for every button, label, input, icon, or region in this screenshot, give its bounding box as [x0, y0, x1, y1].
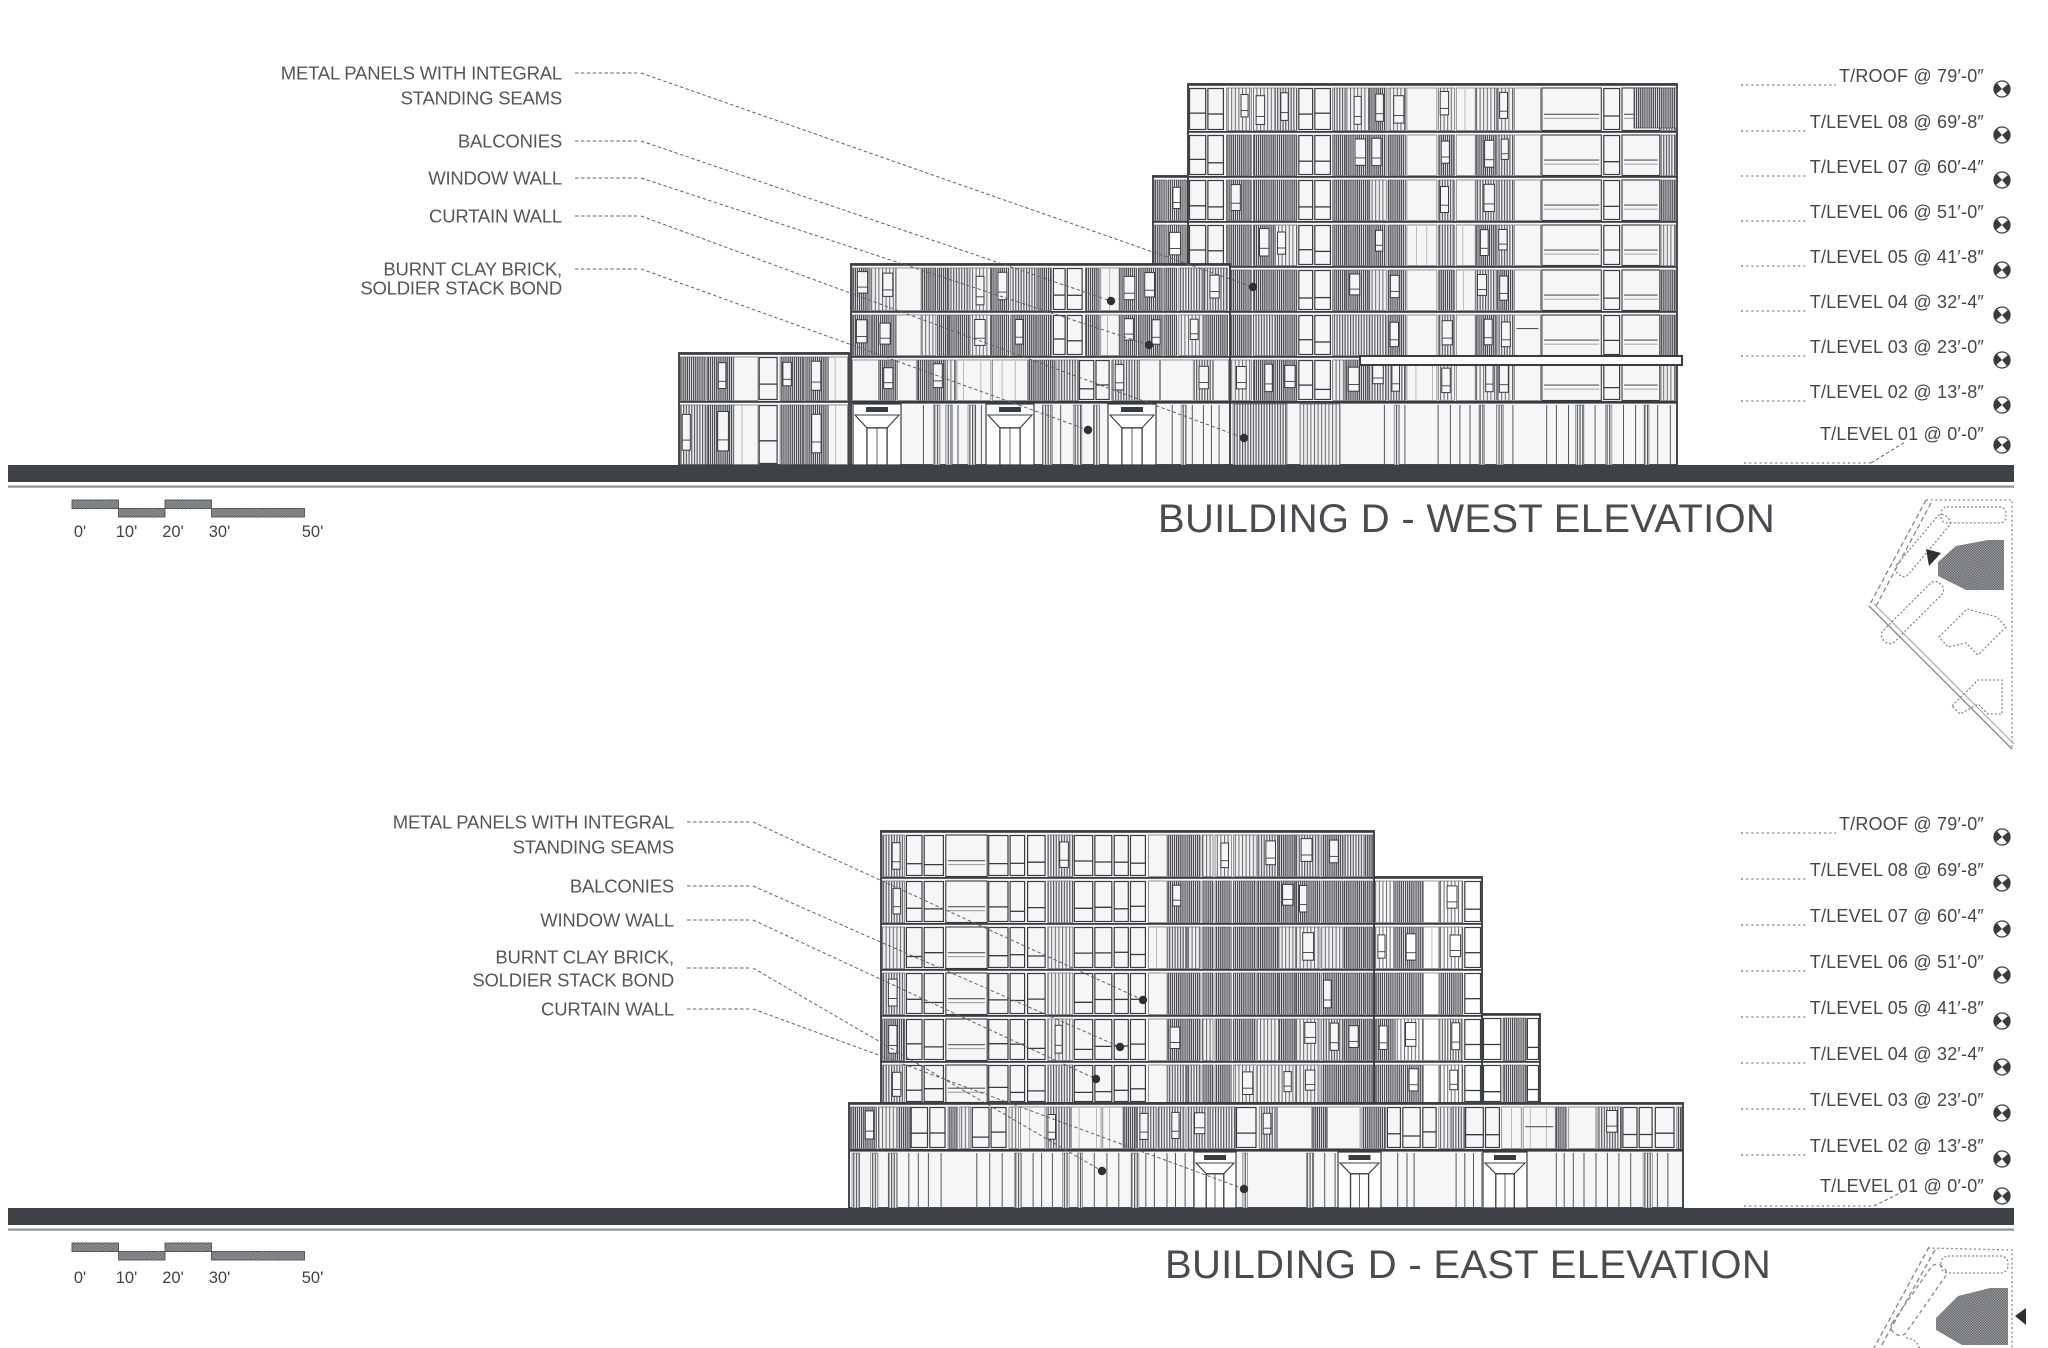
svg-text:WINDOW WALL: WINDOW WALL [540, 910, 674, 931]
svg-text:T/LEVEL 05 @ 41′-8″: T/LEVEL 05 @ 41′-8″ [1810, 998, 1985, 1018]
svg-text:20': 20' [162, 523, 184, 541]
svg-text:T/LEVEL 02 @ 13′-8″: T/LEVEL 02 @ 13′-8″ [1810, 382, 1985, 402]
svg-text:T/LEVEL 04 @ 32′-4″: T/LEVEL 04 @ 32′-4″ [1810, 292, 1985, 312]
svg-text:T/LEVEL 08 @ 69′-8″: T/LEVEL 08 @ 69′-8″ [1810, 112, 1985, 132]
svg-text:BURNT CLAY BRICK,: BURNT CLAY BRICK, [495, 947, 674, 968]
svg-text:T/LEVEL 04 @ 32′-4″: T/LEVEL 04 @ 32′-4″ [1810, 1044, 1985, 1064]
svg-text:BUILDING D - WEST ELEVATION: BUILDING D - WEST ELEVATION [1158, 497, 1775, 541]
svg-text:BURNT CLAY BRICK,: BURNT CLAY BRICK, [383, 259, 562, 280]
svg-text:METAL PANELS WITH INTEGRAL: METAL PANELS WITH INTEGRAL [393, 812, 674, 833]
svg-text:30': 30' [209, 1269, 231, 1287]
svg-text:T/LEVEL 06 @ 51′-0″: T/LEVEL 06 @ 51′-0″ [1810, 202, 1985, 222]
svg-text:CURTAIN WALL: CURTAIN WALL [541, 999, 674, 1020]
svg-text:T/LEVEL 05 @ 41′-8″: T/LEVEL 05 @ 41′-8″ [1810, 247, 1985, 267]
svg-text:T/ROOF @ 79′-0″: T/ROOF @ 79′-0″ [1839, 814, 1984, 834]
svg-text:30': 30' [209, 523, 231, 541]
svg-text:T/ROOF @ 79′-0″: T/ROOF @ 79′-0″ [1839, 66, 1984, 86]
svg-text:T/LEVEL 06 @ 51′-0″: T/LEVEL 06 @ 51′-0″ [1810, 952, 1985, 972]
svg-text:T/LEVEL 02 @ 13′-8″: T/LEVEL 02 @ 13′-8″ [1810, 1136, 1985, 1156]
svg-text:BALCONIES: BALCONIES [570, 876, 674, 897]
svg-text:20': 20' [162, 1269, 184, 1287]
svg-text:METAL PANELS WITH INTEGRAL: METAL PANELS WITH INTEGRAL [281, 63, 562, 84]
svg-text:10': 10' [116, 523, 138, 541]
svg-text:BALCONIES: BALCONIES [458, 131, 562, 152]
svg-text:STANDING SEAMS: STANDING SEAMS [513, 837, 674, 858]
svg-text:SOLDIER STACK BOND: SOLDIER STACK BOND [360, 278, 562, 299]
svg-text:T/LEVEL 07 @ 60′-4″: T/LEVEL 07 @ 60′-4″ [1810, 906, 1985, 926]
svg-text:T/LEVEL 08 @ 69′-8″: T/LEVEL 08 @ 69′-8″ [1810, 860, 1985, 880]
svg-text:WINDOW WALL: WINDOW WALL [428, 168, 562, 189]
svg-text:T/LEVEL 07 @ 60′-4″: T/LEVEL 07 @ 60′-4″ [1810, 157, 1985, 177]
svg-text:0': 0' [74, 523, 86, 541]
svg-text:SOLDIER STACK BOND: SOLDIER STACK BOND [472, 970, 674, 991]
svg-text:CURTAIN WALL: CURTAIN WALL [429, 206, 562, 227]
svg-text:0': 0' [74, 1269, 86, 1287]
svg-text:50': 50' [302, 523, 324, 541]
svg-text:T/LEVEL 03 @ 23′-0″: T/LEVEL 03 @ 23′-0″ [1810, 337, 1985, 357]
svg-text:BUILDING D - EAST ELEVATION: BUILDING D - EAST ELEVATION [1165, 1243, 1771, 1287]
svg-text:T/LEVEL 03 @ 23′-0″: T/LEVEL 03 @ 23′-0″ [1810, 1090, 1985, 1110]
svg-text:50': 50' [302, 1269, 324, 1287]
svg-text:STANDING SEAMS: STANDING SEAMS [401, 88, 562, 109]
svg-text:T/LEVEL 01 @ 0′-0″: T/LEVEL 01 @ 0′-0″ [1820, 424, 1984, 444]
svg-text:T/LEVEL 01 @ 0′-0″: T/LEVEL 01 @ 0′-0″ [1820, 1176, 1984, 1196]
svg-text:10': 10' [116, 1269, 138, 1287]
